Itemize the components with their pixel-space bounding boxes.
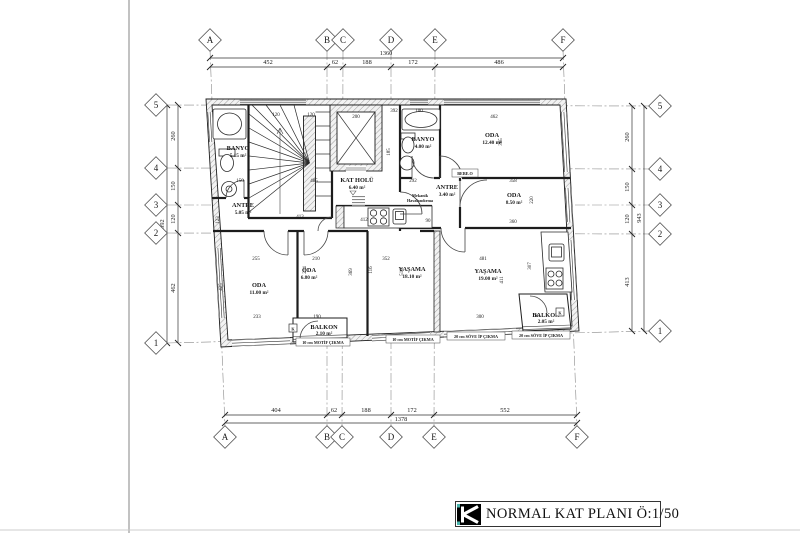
dim-text: 307 [528,262,533,270]
grid-marker-row-1-right: 1 [649,320,672,343]
note-bebe: BEBE.O [457,171,473,176]
dim-text: 516 [400,268,405,276]
note-cikma-right2: 20 cm SÖVE İP ÇIKMA [519,333,563,338]
room-area-antre-b: 3.40 m² [439,192,456,198]
dim-text: 392 [390,109,398,114]
dim-seg: 260 [624,132,631,141]
grid-marker-col-d-top: D [380,29,403,52]
room-area-banyo-b: 4.00 m² [415,144,432,150]
room-area-yasama-a: 18.10 m² [402,274,422,280]
svg-text:1: 1 [154,338,159,348]
dim-text: 120 [272,113,280,118]
svg-text:B: B [324,432,330,442]
svg-text:B: B [324,35,330,45]
dim-text: 120 [307,113,315,118]
svg-text:F: F [560,35,565,45]
dim-text: 365 [499,138,504,146]
room-area-kat-holu: 6.40 m² [349,185,366,191]
dim-text: 116 [369,266,374,274]
dim-seg: 552 [500,407,509,414]
dim-seg: 260 [170,131,177,140]
svg-text:2: 2 [154,228,159,238]
dim-text: 200 [352,115,360,120]
dim-text: 411 [500,276,505,284]
dim-text: 425 [219,283,224,291]
dim-text: 485 [310,179,318,184]
note-mech-2: Havalandırma [407,198,434,203]
room-name-antre-a: ANTRE [232,202,254,209]
svg-text:E: E [431,432,437,442]
grid-marker-col-c-bottom: C [331,426,354,449]
dim-text: 100 [415,109,423,114]
svg-text:D: D [388,35,395,45]
dim-text: 190 [313,315,321,320]
grid-marker-col-d-bottom: D [380,426,403,449]
grid-marker-col-e-bottom: E [423,426,446,449]
dim-text: 233 [253,315,261,320]
floor-plan-canvas: TEKCE [0,0,800,533]
dimension-chain-right: 260 150 120 413 943 [624,103,647,334]
dim-text: 412 [360,218,368,223]
logo-icon [457,504,481,525]
svg-text:A: A [207,35,214,45]
dim-text: 210 [312,257,320,262]
dim-text: 369 [349,268,354,276]
grid-marker-col-a-bottom: A [214,426,237,449]
grid-marker-row-2-right: 2 [649,223,672,246]
room-name-oda-a: ODA [485,132,499,139]
svg-text:C: C [339,432,345,442]
dim-seg: 150 [624,182,631,191]
note-cikma-mid: 10 cm MOTİF ÇIKMA [392,337,434,342]
room-name-balkon-a: BALKON [310,324,338,331]
dim-text: 292 [409,179,417,184]
grid-marker-col-f-bottom: F [566,426,589,449]
grid-marker-col-e-top: E [424,29,447,52]
dim-seg: 413 [624,277,631,286]
dim-text: 300 [476,315,484,320]
svg-text:2: 2 [658,229,663,239]
room-name-antre-b: ANTRE [436,184,458,191]
room-area-banyo-a: 5.15 m² [230,153,247,159]
room-name-yasama-b: YAŞAMA [474,268,502,275]
dim-seg: 486 [494,59,503,66]
dim-seg: 188 [362,59,371,66]
dim-seg: 172 [408,59,417,66]
dim-text: 413 [296,215,304,220]
dim-total-right: 943 [636,213,643,222]
grid-marker-row-3-left: 3 [145,194,168,217]
dimension-chain-top: 1360 452 62 188 172 486 [207,50,566,70]
svg-text:C: C [340,35,346,45]
dim-text: 358 [509,179,517,184]
svg-text:F: F [574,432,579,442]
room-name-banyo-b: BANYO [412,136,435,143]
dim-text: 214 [303,266,308,274]
room-name-banyo-a: BANYO [227,145,250,152]
dim-text: 90 [426,219,432,224]
room-area-oda-d: 6.80 m² [301,275,318,281]
room-name-oda-c: ODA [252,282,266,289]
svg-text:4: 4 [658,164,663,174]
room-name-kat-holu: KAT HOLÜ [340,177,374,184]
svg-text:3: 3 [658,200,663,210]
grid-marker-col-f-top: F [552,29,575,52]
svg-text:A: A [222,432,229,442]
party-wall [434,231,440,332]
svg-text:3: 3 [154,200,159,210]
dim-seg: 120 [624,214,631,223]
dim-seg: 462 [170,283,177,292]
dim-seg: 452 [263,59,272,66]
dim-text: 168 [532,314,540,319]
grid-marker-row-4-left: 4 [145,157,168,180]
dim-total-bottom: 1378 [395,416,408,423]
dim-seg: 150 [170,181,177,190]
note-cikma-right1: 20 cm SÖVE İP ÇIKMA [454,334,498,339]
svg-text:1: 1 [658,326,663,336]
room-area-oda-c: 11.00 m² [250,290,269,296]
svg-text:D: D [388,432,395,442]
room-area-yasama-b: 19.00 m² [478,276,498,282]
title-block: NORMAL KAT PLANI Ö:1/50 [455,501,661,527]
dim-text: 352 [382,257,390,262]
dim-text: 360 [509,220,517,225]
dim-text: 150 [236,179,244,184]
grid-marker-col-c-top: C [332,29,355,52]
svg-text:E: E [432,35,438,45]
grid-marker-row-5-left: 5 [145,94,168,117]
dim-seg: 62 [332,59,338,66]
grid-marker-row-1-left: 1 [145,332,168,355]
dimension-chain-bottom: 404 62 188 172 552 1378 [222,407,580,426]
dim-text: 185 [387,148,392,156]
room-area-balkon-b: 2.05 m² [538,319,555,325]
drawing-title: NORMAL KAT PLANI Ö:1/50 [481,506,679,523]
grid-marker-row-3-right: 3 [649,194,672,217]
room-area-antre-a: 5.05 m² [235,210,252,216]
dim-text: 481 [479,257,487,262]
dim-seg: 188 [361,407,370,414]
drawing-sheet: TEKCE [0,0,800,533]
room-area-oda-b: 8.50 m² [506,200,523,206]
svg-text:4: 4 [154,163,159,173]
dim-seg: 172 [407,407,416,414]
room-area-balkon-a: 2.10 m² [316,331,333,337]
room-name-oda-b: ODA [507,192,521,199]
svg-text:5: 5 [154,100,159,110]
grid-marker-col-a-top: A [199,29,222,52]
grid-marker-row-4-right: 4 [649,158,672,181]
dim-text: 462 [490,115,498,120]
dim-seg: 62 [331,407,337,414]
dim-seg: 404 [271,407,281,414]
dim-text: 255 [252,257,260,262]
dim-seg: 120 [170,214,177,223]
dim-text: 220 [530,196,535,204]
note-cikma-left: 10 cm MOTİF ÇIKMA [302,340,344,345]
svg-text:5: 5 [658,101,663,111]
dimension-chain-left: 260 150 120 462 992 [159,102,181,346]
dim-text: 123 [216,216,221,224]
grid-marker-row-5-right: 5 [649,95,672,118]
